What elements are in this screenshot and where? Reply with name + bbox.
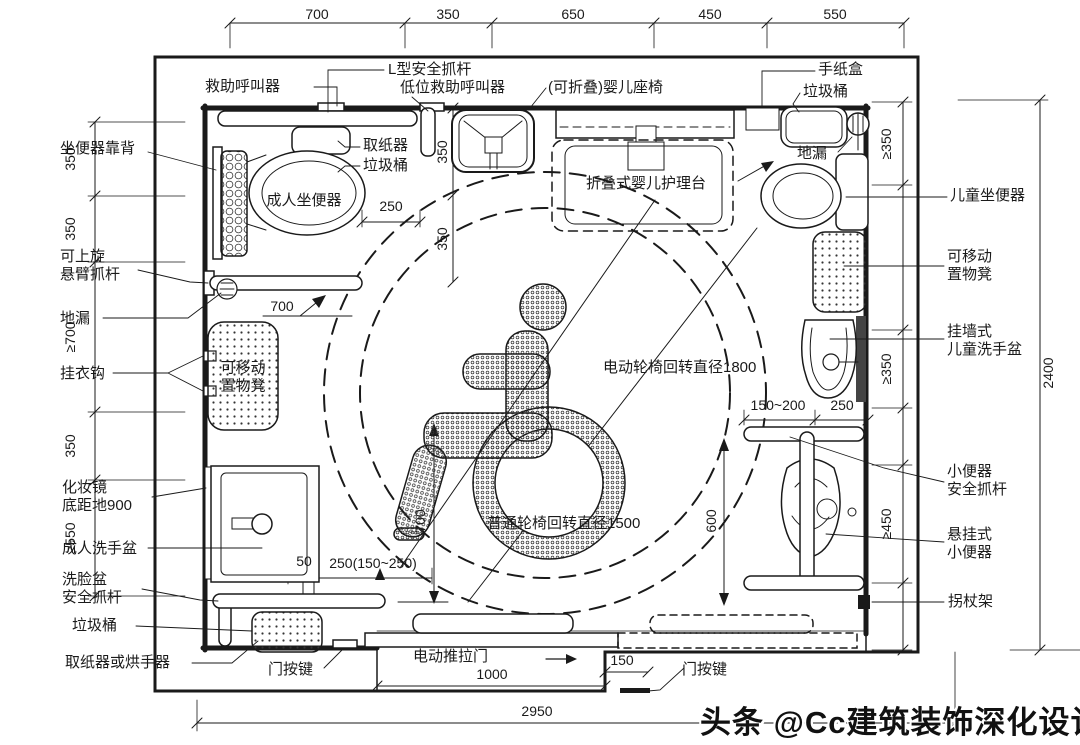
- label-trash-small: 垃圾桶: [363, 157, 408, 175]
- dim-urinal-span-600: 600: [703, 509, 719, 532]
- dim-toilet-side: 250: [379, 198, 402, 214]
- dim-urinal-range: 150~200: [751, 397, 806, 413]
- dim-basin-edge-50: 50: [296, 553, 312, 569]
- crutch-rack-shape: [858, 595, 870, 609]
- label-circle-1800: 电动轮椅回转直径1800: [603, 359, 756, 377]
- label-basin-grab-bar: 洗脸盆 安全抓杆: [62, 571, 122, 606]
- dim-right-350a: ≥350: [878, 128, 894, 159]
- dim-top-700: 700: [305, 6, 328, 22]
- label-paper-dispenser: 取纸器: [363, 137, 408, 155]
- label-paper-or-dryer: 取纸器或烘手器: [65, 654, 170, 672]
- label-tissue-box: 手纸盒: [818, 61, 863, 79]
- label-trash-bottom-left: 垃圾桶: [72, 617, 117, 635]
- dim-basin-range: 250(150~250): [329, 555, 417, 571]
- label-circle-1500: 普通轮椅回转直径1500: [487, 515, 640, 533]
- mirror-shape: [205, 467, 211, 579]
- label-urinal: 悬挂式 小便器: [947, 526, 992, 561]
- label-rescue-call: 救助呼叫器: [205, 78, 280, 96]
- label-child-toilet: 儿童坐便器: [950, 187, 1025, 205]
- trash-bin-top-right: [781, 107, 847, 147]
- dim-door-width: 1000: [476, 666, 507, 682]
- accessible-toilet-floor-plan: 救助呼叫器 L型安全抓杆 低位救助呼叫器 (可折叠)婴儿座椅 手纸盒 垃圾桶 地…: [0, 0, 1080, 745]
- child-toilet-shape: [761, 154, 868, 230]
- door-handle-closed: [413, 614, 573, 633]
- dim-top-650: 650: [561, 6, 584, 22]
- dim-left-700: ≥700: [62, 321, 78, 352]
- dim-right-350b: ≥350: [878, 353, 894, 384]
- dim-overall-width: 2950: [521, 703, 552, 719]
- label-low-rescue-call: 低位救助呼叫器: [400, 79, 505, 97]
- label-crutch-rack: 拐杖架: [948, 593, 993, 611]
- dim-door-step: 150: [610, 652, 633, 668]
- door-button-left-shape[interactable]: [333, 640, 357, 648]
- door-handle-open: [650, 615, 813, 633]
- tissue-box-shape: [746, 108, 779, 130]
- child-washbasin-shape: [802, 316, 866, 402]
- baby-seat-shape: [452, 110, 534, 172]
- grab-bar-top: [218, 103, 444, 156]
- adult-washbasin: [205, 466, 319, 601]
- label-door-button-right: 门按键: [682, 661, 727, 679]
- label-clothes-hook: 挂衣钩: [60, 365, 105, 383]
- label-swing-grab-bar: 可上旋 悬臂抓杆: [60, 248, 120, 283]
- label-door-button-left: 门按键: [268, 661, 313, 679]
- door-button-right-shape[interactable]: [620, 688, 650, 693]
- toilet-backrest-pad: [221, 151, 247, 256]
- dim-left-350a: 350: [62, 147, 78, 170]
- label-stool-right: 可移动 置物凳: [947, 248, 992, 283]
- dim-top-450: 450: [698, 6, 721, 22]
- urinal-grab-bars: [744, 427, 864, 590]
- dim-left-550: ≥550: [62, 522, 78, 553]
- dim-left-350b: 350: [62, 217, 78, 240]
- label-stool-left: 可移动 置物凳: [220, 359, 265, 394]
- dim-urinal-side: 250: [830, 397, 853, 413]
- label-urinal-grab: 小便器 安全抓杆: [947, 463, 1007, 498]
- label-sliding-door: 电动推拉门: [413, 648, 488, 666]
- stool-right-shape: [813, 232, 867, 312]
- trash-bin-bottom-left: [252, 612, 322, 652]
- label-care-table: 折叠式婴儿护理台: [586, 175, 706, 193]
- dim-top-350: 350: [436, 6, 459, 22]
- dim-top-550: 550: [823, 6, 846, 22]
- dim-overall-height: 2400: [1040, 357, 1056, 388]
- dim-seat-off-a: 350: [434, 140, 450, 163]
- dim-seat-off-b: 350: [434, 227, 450, 250]
- door-panel-closed: [365, 633, 618, 647]
- dim-right-450: ≥450: [878, 508, 894, 539]
- label-baby-seat: (可折叠)婴儿座椅: [548, 79, 663, 97]
- plan-canvas: [0, 0, 1080, 745]
- label-floor-drain-right: 地漏: [797, 145, 827, 163]
- baby-care-table: [552, 110, 734, 231]
- dim-basin-front-700: 700: [412, 509, 428, 532]
- label-mirror: 化妆镜 底距地900: [62, 479, 132, 514]
- label-l-grab-bar: L型安全抓杆: [388, 61, 471, 79]
- urinal-shape: [781, 459, 856, 557]
- dim-left-350c: 350: [62, 434, 78, 457]
- dim-transfer-700: 700: [270, 298, 293, 314]
- swing-up-grab-bar: [204, 271, 362, 299]
- label-trash-top-right: 垃圾桶: [803, 83, 848, 101]
- label-child-basin: 挂墙式 儿童洗手盆: [947, 323, 1022, 358]
- label-adult-toilet: 成人坐便器: [266, 192, 341, 210]
- watermark: 头条 @Cc建筑装饰深化设计: [700, 697, 1080, 742]
- door-panel-open: [618, 633, 857, 648]
